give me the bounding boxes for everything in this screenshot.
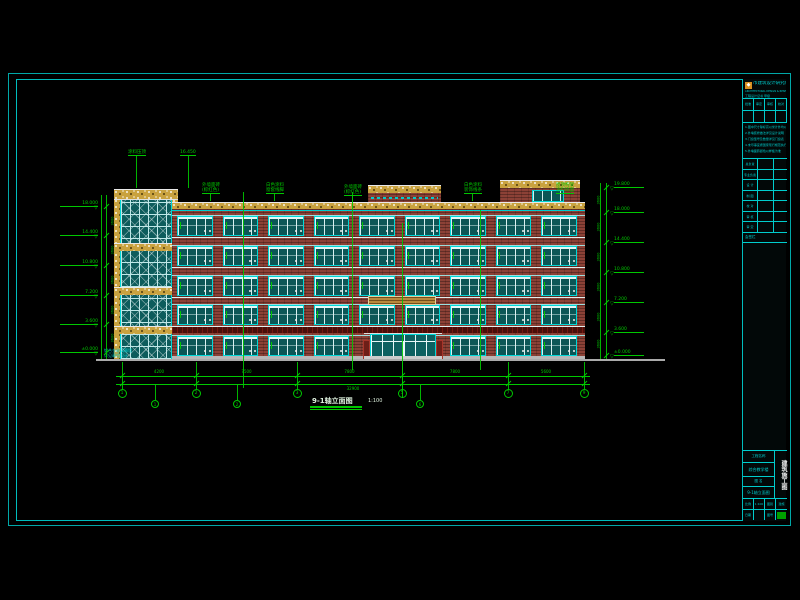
- title-block: ◆市建筑设计研究院ARCHITECTURAL DESIGN & RESEARCH…: [742, 79, 786, 521]
- dim-text: 7500: [237, 369, 257, 374]
- level-triangle: ▽: [610, 332, 614, 336]
- drawing-type-vertical-text: 建筑施工图: [776, 453, 787, 497]
- vertical-divider: [774, 451, 775, 499]
- sig-value-cell: [758, 201, 774, 212]
- grid-line: [101, 195, 102, 359]
- approval-cell-empty: [776, 111, 787, 122]
- material-callout: 白色涂料窗套线脚: [266, 183, 284, 194]
- sig-label-cell: 设 计: [743, 180, 758, 191]
- story-dim-text: 3600: [110, 246, 114, 255]
- grid-line: [136, 156, 137, 188]
- level-marker-right: 18.000: [614, 207, 644, 213]
- grid-line: [480, 210, 481, 370]
- dim-line: [116, 384, 590, 385]
- sig-extra-cell: [774, 180, 787, 191]
- cad-canvas: 铝合金玻璃幕墙详见幕墙设计 涂料压顶16.450外墙面砖(棕红色)白色涂料窗套线…: [0, 0, 800, 600]
- sig-value-cell: [758, 212, 774, 223]
- sig-label-cell: 专业负责: [743, 170, 758, 181]
- drawing-label-cell: 图 名: [743, 477, 774, 487]
- dim-text: 7800: [340, 369, 360, 374]
- grid-line: [106, 195, 107, 359]
- level-triangle: ▽: [94, 295, 98, 299]
- huiqian-row: 会签栏: [743, 233, 787, 243]
- company-logo: ◆: [745, 82, 752, 89]
- grid-line: [600, 183, 601, 359]
- sig-value-cell: [758, 222, 774, 233]
- grid-bubble: 1: [118, 389, 127, 398]
- level-marker-left: 7.200: [60, 290, 98, 296]
- level-marker-left: 14.400: [60, 230, 98, 236]
- note-line: 5.外墙面砖颜色以样板为准: [745, 149, 786, 155]
- sig-value-cell: [758, 191, 774, 202]
- level-triangle: ▽: [94, 235, 98, 239]
- approval-cell-empty: [743, 111, 754, 122]
- grid-bubble: 3: [293, 389, 302, 398]
- grid-line: [210, 194, 211, 201]
- grid-line: [237, 384, 238, 400]
- grid-bubble: 2: [192, 389, 201, 398]
- sig-extra-cell: [774, 212, 787, 223]
- sig-extra-cell: [774, 159, 787, 170]
- level-triangle: ▽: [610, 355, 614, 359]
- approval-cell-empty: [765, 111, 776, 122]
- story-dim-text: 3600: [596, 339, 600, 348]
- story-dim-text: 3600: [110, 216, 114, 225]
- level-triangle: ▽: [94, 265, 98, 269]
- material-callout: 外墙面砖(棕红色): [202, 183, 220, 194]
- sig-label-cell: 校 对: [743, 201, 758, 212]
- project-label-cell: 工程名称: [743, 451, 774, 463]
- drawing-title-underline: [310, 406, 362, 408]
- bottom-cell: [754, 510, 765, 521]
- bottom-cell: 图号: [765, 510, 776, 521]
- bottom-cell: 图别: [765, 499, 776, 510]
- sig-label-cell: 审 核: [743, 212, 758, 223]
- sig-label-cell: 制 图: [743, 191, 758, 202]
- sub-grid-bubble: 1: [151, 400, 159, 408]
- level-triangle: ▽: [610, 187, 614, 191]
- drawing-title: 9-1轴立面图: [312, 396, 353, 406]
- story-dim-text: 3600: [596, 313, 600, 322]
- level-marker-left: ±0.000: [60, 347, 98, 353]
- sub-grid-bubble: 6: [416, 400, 424, 408]
- sig-value-cell: [758, 159, 774, 170]
- sig-extra-cell: [774, 201, 787, 212]
- sig-label-cell: 总负责: [743, 159, 758, 170]
- level-marker-left: 3.600: [60, 319, 98, 325]
- sig-value-cell: [758, 180, 774, 191]
- approval-table: 批准审定审核校对: [743, 99, 787, 123]
- grid-line: [274, 194, 275, 201]
- sig-extra-cell: [774, 191, 787, 202]
- approval-cell-empty: [754, 111, 765, 122]
- material-callout: 涂料压顶: [128, 150, 146, 156]
- company-name: 市建筑设计研究院: [753, 81, 786, 90]
- sub-grid-bubble: 2: [233, 400, 241, 408]
- drawing-scale: 1:100: [368, 398, 382, 404]
- bottom-cell: 1:100: [754, 499, 765, 510]
- bottom-cell: 比例: [743, 499, 754, 510]
- level-triangle: ▽: [94, 352, 98, 356]
- level-marker-right: 3.600: [614, 327, 644, 333]
- grid-line: [352, 192, 353, 370]
- material-callout: 屋顶构架涂料饰面: [556, 183, 574, 194]
- signature-table: 总负责专业负责设 计制 图校 对审 核审 定: [743, 159, 787, 233]
- dim-text: 4200: [149, 369, 169, 374]
- bottom-cell: 建施: [776, 499, 787, 510]
- dim-text: 7800: [445, 369, 465, 374]
- level-triangle: ▽: [610, 272, 614, 276]
- approval-cell: 审核: [765, 99, 776, 111]
- stamp-box: [777, 512, 786, 519]
- grid-line: [155, 384, 156, 400]
- grid-line: [243, 192, 244, 388]
- story-dim-text: 3600: [596, 253, 600, 262]
- grid-line: [420, 384, 421, 400]
- level-marker-left: 18.000: [60, 201, 98, 207]
- sig-label-cell: 审 定: [743, 222, 758, 233]
- bottom-cell: 日期: [743, 510, 754, 521]
- level-triangle: ▽: [94, 324, 98, 328]
- project-area: 建筑施工图工程名称综合教学楼图 名9-1轴立面图: [743, 451, 787, 499]
- level-marker-right: 19.800: [614, 182, 644, 188]
- huiqian-label: 会签栏: [745, 233, 785, 243]
- story-dim-text: 3600: [596, 195, 600, 204]
- story-dim-text: 3600: [110, 305, 114, 314]
- grid-line: [472, 194, 473, 201]
- titleblock-header: ◆市建筑设计研究院ARCHITECTURAL DESIGN & RESEARCH…: [743, 79, 787, 99]
- sig-extra-cell: [774, 170, 787, 181]
- story-dim-text: 3600: [596, 283, 600, 292]
- annotation-layer: 涂料压顶16.450外墙面砖(棕红色)白色涂料窗套线脚外墙面砖(棕红色)白色涂料…: [0, 0, 800, 600]
- approval-cell: 校对: [776, 99, 787, 111]
- level-triangle: ▽: [610, 302, 614, 306]
- sig-value-cell: [758, 170, 774, 181]
- story-dim-text: 3600: [110, 276, 114, 285]
- level-marker-right: ±0.000: [614, 350, 644, 356]
- material-callout: 白色涂料装饰线条: [464, 183, 482, 194]
- level-triangle: ▽: [610, 242, 614, 246]
- level-triangle: ▽: [610, 212, 614, 216]
- level-triangle: ▽: [94, 206, 98, 210]
- approval-cell: 审定: [754, 99, 765, 111]
- material-callout: 外墙面砖(棕红色): [344, 185, 362, 196]
- grid-bubble: 9: [580, 389, 589, 398]
- dim-line: [116, 376, 590, 377]
- grid-bubble: 7: [504, 389, 513, 398]
- level-marker-right: 10.800: [614, 267, 644, 273]
- dim-text: 5600: [536, 369, 556, 374]
- story-dim-text: 3600: [596, 223, 600, 232]
- overall-dim-text: 32900: [341, 386, 365, 391]
- approval-cell: 批准: [743, 99, 754, 111]
- story-dim-text: 3600: [110, 334, 114, 343]
- titleblock-notes: 1.图中尺寸除标高以米计外均以毫米计2.外墙装修做法详见设计说明3.门窗型号及数…: [743, 123, 787, 159]
- sig-extra-cell: [774, 222, 787, 233]
- empty-cell: [743, 243, 787, 451]
- grid-line: [188, 156, 189, 188]
- company-cert: 工程设计证书 甲级: [745, 94, 786, 98]
- project-value-cell: 综合教学楼: [743, 463, 774, 477]
- drawing-title-underline-thin: [310, 409, 362, 410]
- level-marker-right: 14.400: [614, 237, 644, 243]
- grid-bubble: 5: [398, 389, 407, 398]
- level-marker-left: 10.800: [60, 260, 98, 266]
- drawing-value-cell: 9-1轴立面图: [743, 487, 774, 499]
- level-marker-right: 7.200: [614, 297, 644, 303]
